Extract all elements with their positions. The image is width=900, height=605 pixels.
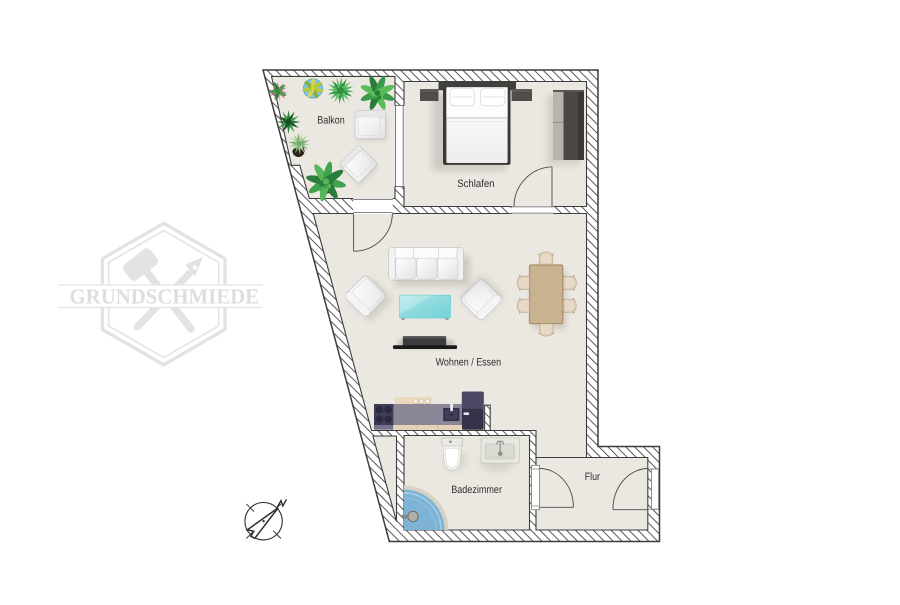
svg-text:Balkon: Balkon <box>317 115 345 127</box>
svg-text:Schlafen: Schlafen <box>457 178 494 190</box>
svg-text:GRUNDSCHMIEDE: GRUNDSCHMIEDE <box>70 285 260 309</box>
svg-text:Wohnen / Essen: Wohnen / Essen <box>436 357 502 369</box>
svg-text:Badezimmer: Badezimmer <box>451 484 502 496</box>
svg-text:Flur: Flur <box>585 471 601 483</box>
